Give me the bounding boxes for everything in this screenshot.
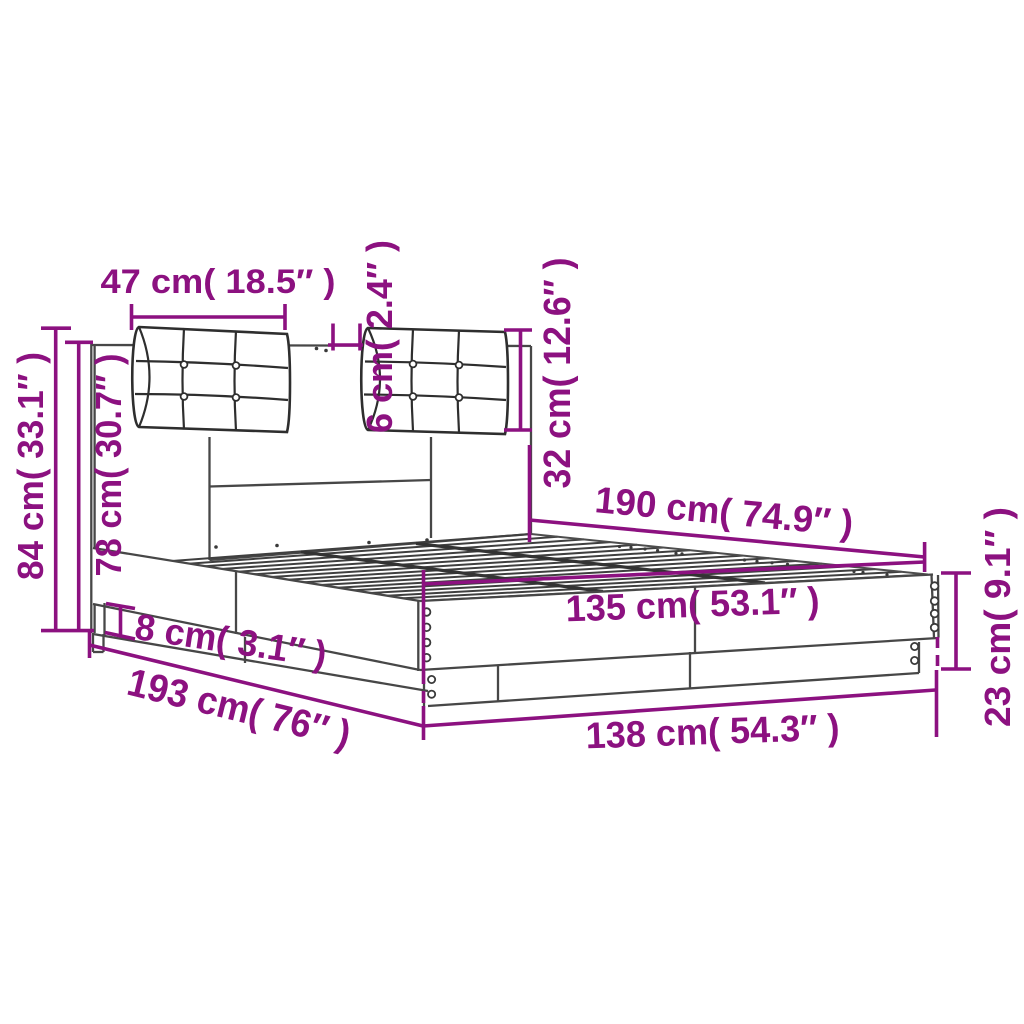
svg-text:6 cm( 2.4″ ): 6 cm( 2.4″ ) (359, 240, 400, 433)
svg-text:23 cm( 9.1″ ): 23 cm( 9.1″ ) (977, 507, 1018, 727)
svg-text:47 cm( 18.5″ ): 47 cm( 18.5″ ) (101, 263, 336, 301)
svg-text:78 cm( 30.7″ ): 78 cm( 30.7″ ) (88, 354, 129, 577)
svg-text:32 cm( 12.6″ ): 32 cm( 12.6″ ) (537, 258, 579, 489)
svg-text:84 cm( 33.1″ ): 84 cm( 33.1″ ) (10, 352, 51, 580)
